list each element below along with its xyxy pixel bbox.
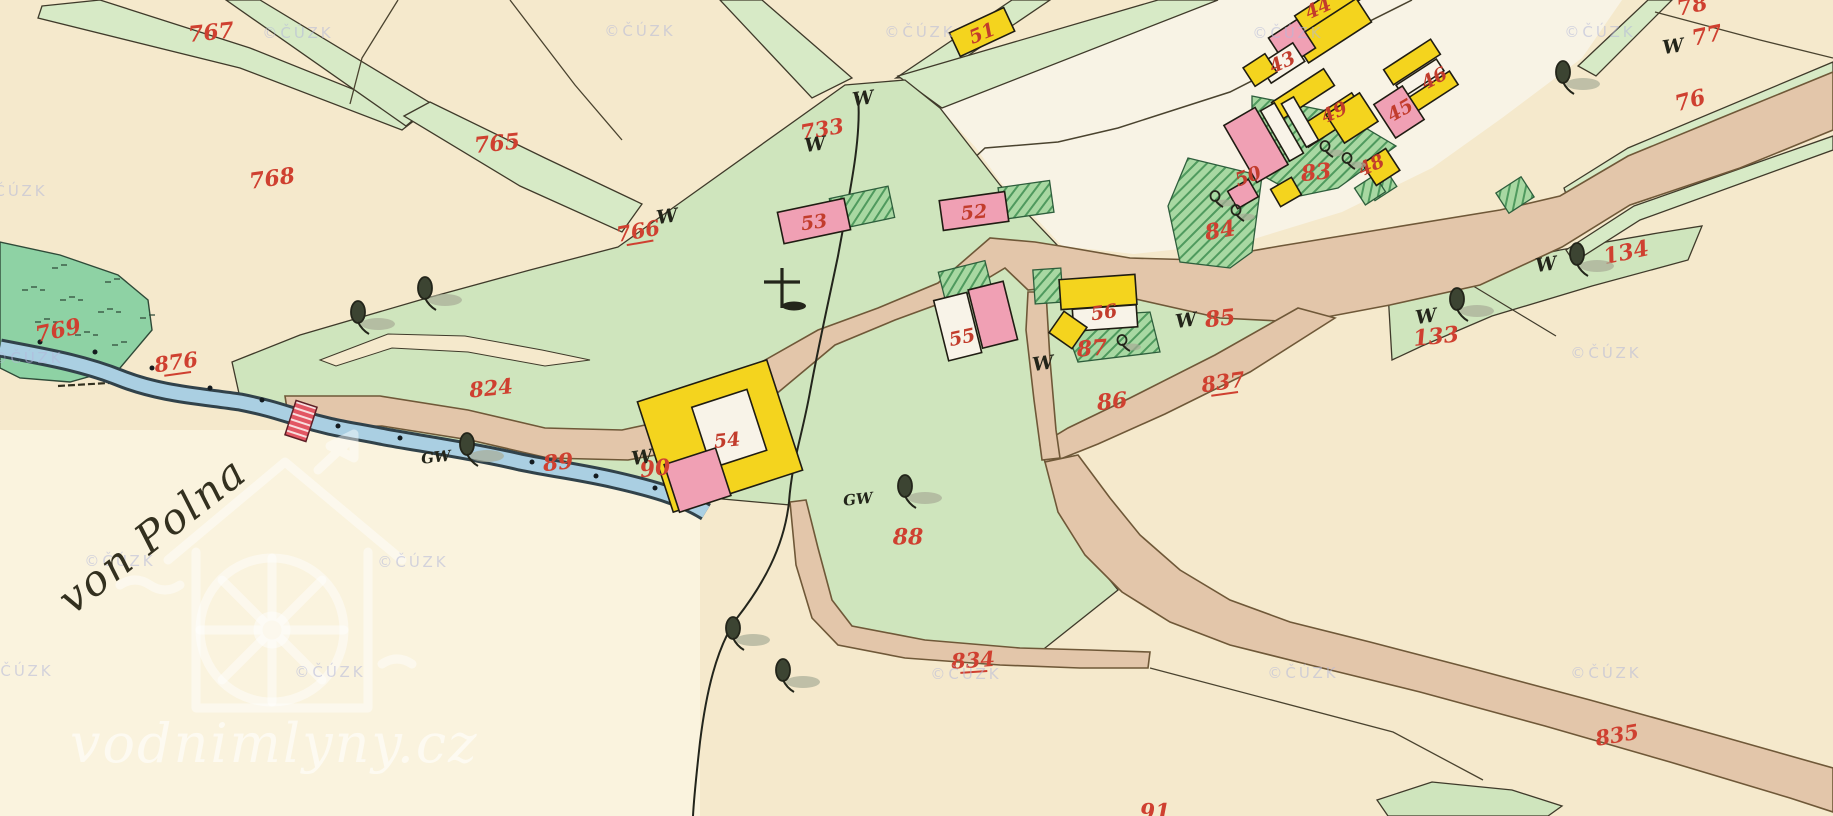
svg-text:56: 56: [1089, 300, 1118, 325]
meadow-symbol-GW: GW: [420, 447, 454, 468]
copyright-watermark: ©ČÚZK: [604, 21, 675, 40]
meadow-symbol-GW: GW: [842, 489, 876, 510]
svg-text:85: 85: [1202, 304, 1236, 333]
parcel-label-91: 91: [1140, 800, 1171, 816]
road-parcel-label-824: 824: [467, 373, 514, 403]
building-number-53: 53: [799, 210, 828, 235]
copyright-watermark: ©ČÚZK: [1570, 663, 1641, 682]
garden-at-56: [1033, 268, 1063, 304]
svg-text:765: 765: [473, 128, 521, 159]
copyright-watermark: ©ČÚZK: [0, 661, 54, 680]
building-number-54: 54: [713, 428, 742, 453]
svg-text:767: 767: [187, 17, 236, 48]
cadastral-map-canvas: 7677657687697677788586889113313483848789…: [0, 0, 1833, 816]
copyright-watermark: ©ČÚZK: [884, 22, 955, 41]
svg-text:54: 54: [713, 428, 742, 453]
parcel-label-84: 84: [1202, 215, 1238, 246]
site-watermark: vodnimlyny.cz: [70, 712, 479, 775]
parcel-label-89: 89: [540, 448, 574, 477]
svg-text:52: 52: [960, 200, 989, 225]
cadastral-map-viewport: 7677657687697677788586889113313483848789…: [0, 0, 1833, 816]
svg-text:84: 84: [1202, 215, 1238, 246]
svg-text:87: 87: [1075, 335, 1109, 363]
copyright-watermark: ©ČÚZK: [930, 664, 1001, 683]
svg-text:86: 86: [1094, 387, 1128, 416]
copyright-watermark: ©ČÚZK: [1570, 343, 1641, 362]
copyright-watermark: ©ČÚZK: [0, 181, 48, 200]
copyright-watermark: ©ČÚZK: [262, 23, 333, 42]
svg-text:83: 83: [1298, 158, 1332, 187]
svg-text:GW: GW: [842, 489, 876, 510]
svg-text:88: 88: [892, 525, 924, 551]
copyright-watermark: ©ČÚZK: [1267, 663, 1338, 682]
building-number-52: 52: [960, 200, 989, 225]
parcel-label-86: 86: [1094, 387, 1128, 416]
copyright-watermark: ©ČÚZK: [1252, 23, 1323, 42]
parcel-label-87: 87: [1075, 335, 1109, 363]
parcel-label-765: 765: [473, 128, 521, 159]
copyright-watermark: ©ČÚZK: [377, 552, 448, 571]
parcel-label-83: 83: [1298, 158, 1332, 187]
svg-text:89: 89: [540, 448, 574, 477]
copyright-watermark: ©ČÚZK: [0, 348, 64, 367]
parcel-label-767: 767: [187, 17, 236, 48]
svg-text:91: 91: [1140, 800, 1171, 816]
svg-text:GW: GW: [420, 447, 454, 468]
building-number-56: 56: [1089, 300, 1118, 325]
parcel-label-88: 88: [892, 525, 924, 551]
svg-text:53: 53: [799, 210, 828, 235]
svg-text:824: 824: [467, 373, 514, 403]
copyright-watermark: ©ČÚZK: [294, 662, 365, 681]
copyright-watermark: ©ČÚZK: [1564, 22, 1635, 41]
parcel-label-85: 85: [1202, 304, 1236, 333]
